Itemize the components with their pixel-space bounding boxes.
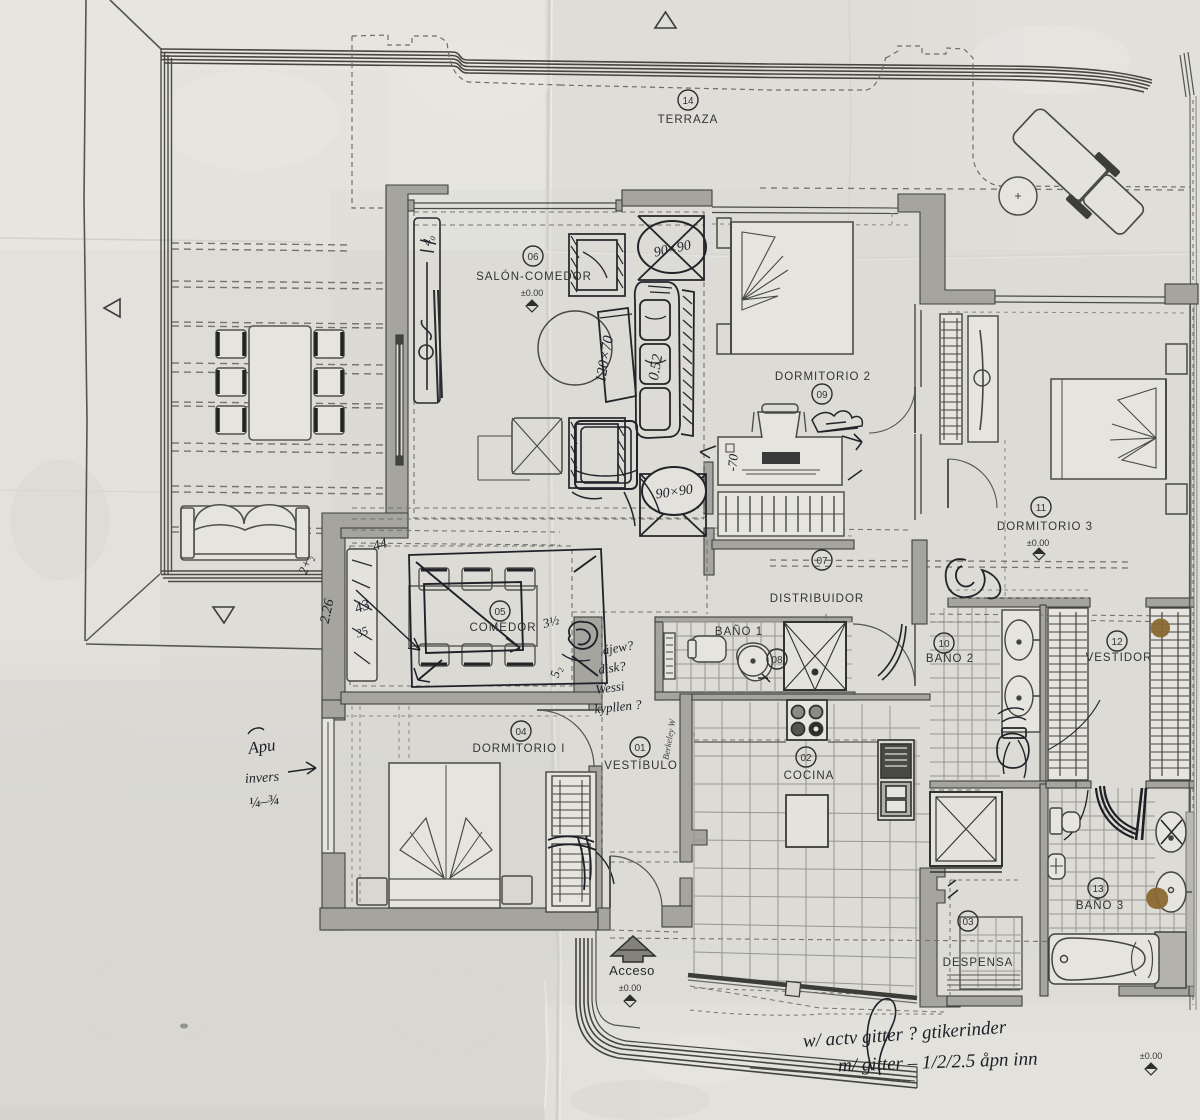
svg-text:±0.00: ±0.00 — [619, 983, 641, 993]
svg-text:invers: invers — [244, 770, 280, 787]
svg-text:01: 01 — [634, 743, 646, 754]
svg-text:04: 04 — [515, 727, 527, 738]
svg-text:07: 07 — [816, 556, 828, 567]
svg-text:DORMITORIO I: DORMITORIO I — [473, 743, 566, 755]
svg-text:DESPENSA: DESPENSA — [943, 957, 1014, 969]
svg-text:Apu: Apu — [246, 735, 277, 758]
svg-text:02: 02 — [800, 753, 812, 764]
svg-text:-70: -70 — [724, 453, 740, 472]
svg-text:BAÑO 3: BAÑO 3 — [1076, 899, 1124, 912]
svg-text:14: 14 — [682, 96, 694, 107]
svg-text:±0.00: ±0.00 — [1027, 538, 1049, 548]
svg-text:13: 13 — [1092, 884, 1104, 895]
svg-text:BAÑO 2: BAÑO 2 — [926, 652, 974, 665]
svg-text:11: 11 — [1036, 503, 1047, 514]
svg-text:06: 06 — [527, 252, 539, 263]
svg-text:08: 08 — [771, 655, 783, 666]
svg-text:03: 03 — [962, 917, 974, 928]
svg-text:DORMITORIO 3: DORMITORIO 3 — [997, 521, 1093, 533]
svg-text:DORMITORIO 2: DORMITORIO 2 — [775, 371, 871, 383]
svg-text:BAÑO 1: BAÑO 1 — [715, 625, 763, 638]
svg-text:COMEDOR: COMEDOR — [469, 622, 536, 634]
svg-text:±0.00: ±0.00 — [1140, 1051, 1162, 1061]
svg-text:DISTRIBUIDOR: DISTRIBUIDOR — [770, 593, 864, 605]
svg-text:VESTIDOR: VESTIDOR — [1086, 652, 1153, 664]
svg-text:COCINA: COCINA — [784, 770, 835, 782]
svg-text:±0.00: ±0.00 — [521, 288, 543, 298]
svg-text:12: 12 — [1111, 637, 1123, 648]
svg-text:SALÓN-COMEDOR: SALÓN-COMEDOR — [476, 270, 592, 283]
svg-text:05: 05 — [494, 607, 506, 618]
svg-text:TERRAZA: TERRAZA — [658, 114, 719, 126]
svg-text:Acceso: Acceso — [609, 963, 655, 978]
svg-text:10: 10 — [938, 639, 950, 650]
svg-text:09: 09 — [816, 390, 828, 401]
